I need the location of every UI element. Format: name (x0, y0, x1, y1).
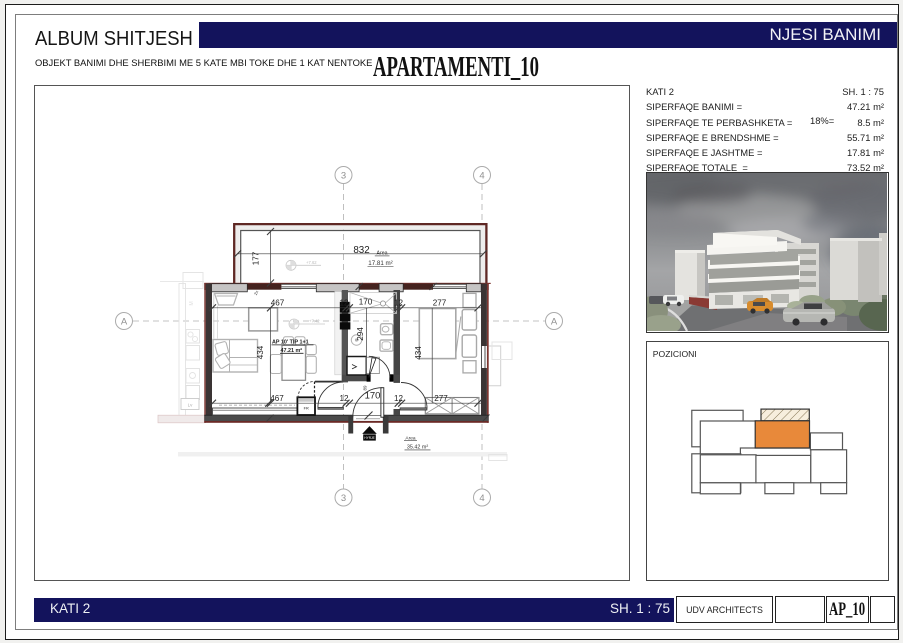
svg-text:M: M (189, 301, 195, 305)
svg-text:4: 4 (479, 492, 484, 503)
svg-text:277: 277 (434, 394, 448, 403)
svg-text:170: 170 (359, 297, 373, 306)
svg-text:+7.62: +7.62 (306, 259, 317, 264)
svg-text:Lv: Lv (188, 402, 194, 407)
svg-text:294: 294 (356, 326, 365, 340)
svg-text:12: 12 (394, 394, 404, 403)
svg-text:4: 4 (479, 170, 484, 181)
svg-text:A: A (551, 316, 558, 327)
svg-text:12: 12 (339, 394, 349, 403)
svg-text:17.81 m²: 17.81 m² (368, 260, 392, 267)
svg-text:170: 170 (365, 390, 381, 401)
svg-text:12: 12 (339, 298, 349, 307)
svg-text:12: 12 (394, 298, 404, 307)
svg-text:832: 832 (353, 244, 369, 255)
svg-text:3: 3 (341, 170, 346, 181)
svg-text:3: 3 (341, 492, 346, 503)
svg-text:177: 177 (252, 251, 261, 265)
svg-text:277: 277 (433, 298, 447, 307)
svg-text:434: 434 (256, 345, 265, 359)
svg-text:2x: 2x (253, 288, 260, 295)
svg-text:89: 89 (363, 384, 368, 390)
svg-text:+7.42: +7.42 (309, 318, 320, 323)
svg-text:434: 434 (414, 345, 423, 359)
svg-text:A: A (121, 316, 128, 327)
svg-text:HYRJE: HYRJE (364, 436, 374, 440)
svg-text:FR: FR (304, 406, 309, 410)
